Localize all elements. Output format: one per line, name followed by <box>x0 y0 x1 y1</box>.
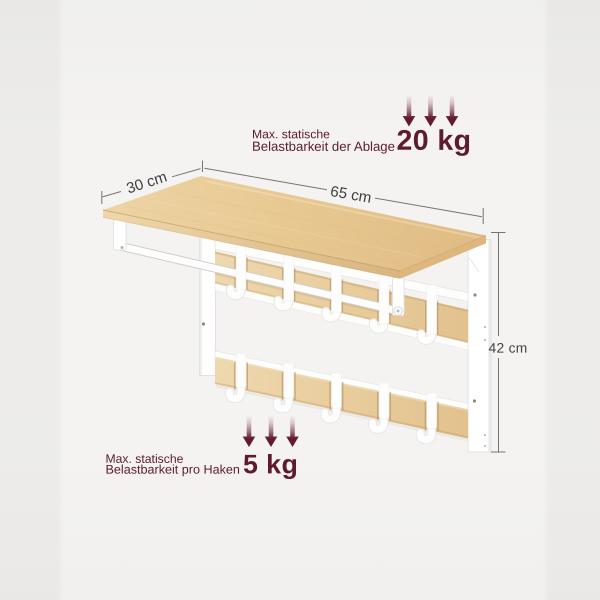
svg-text:20 kg: 20 kg <box>396 125 471 157</box>
svg-text:42 cm: 42 cm <box>488 341 527 356</box>
svg-text:Belastbarkeit der Ablage: Belastbarkeit der Ablage <box>252 139 395 154</box>
svg-text:5 kg: 5 kg <box>243 449 298 479</box>
svg-text:Belastbarkeit pro Haken: Belastbarkeit pro Haken <box>105 463 239 477</box>
